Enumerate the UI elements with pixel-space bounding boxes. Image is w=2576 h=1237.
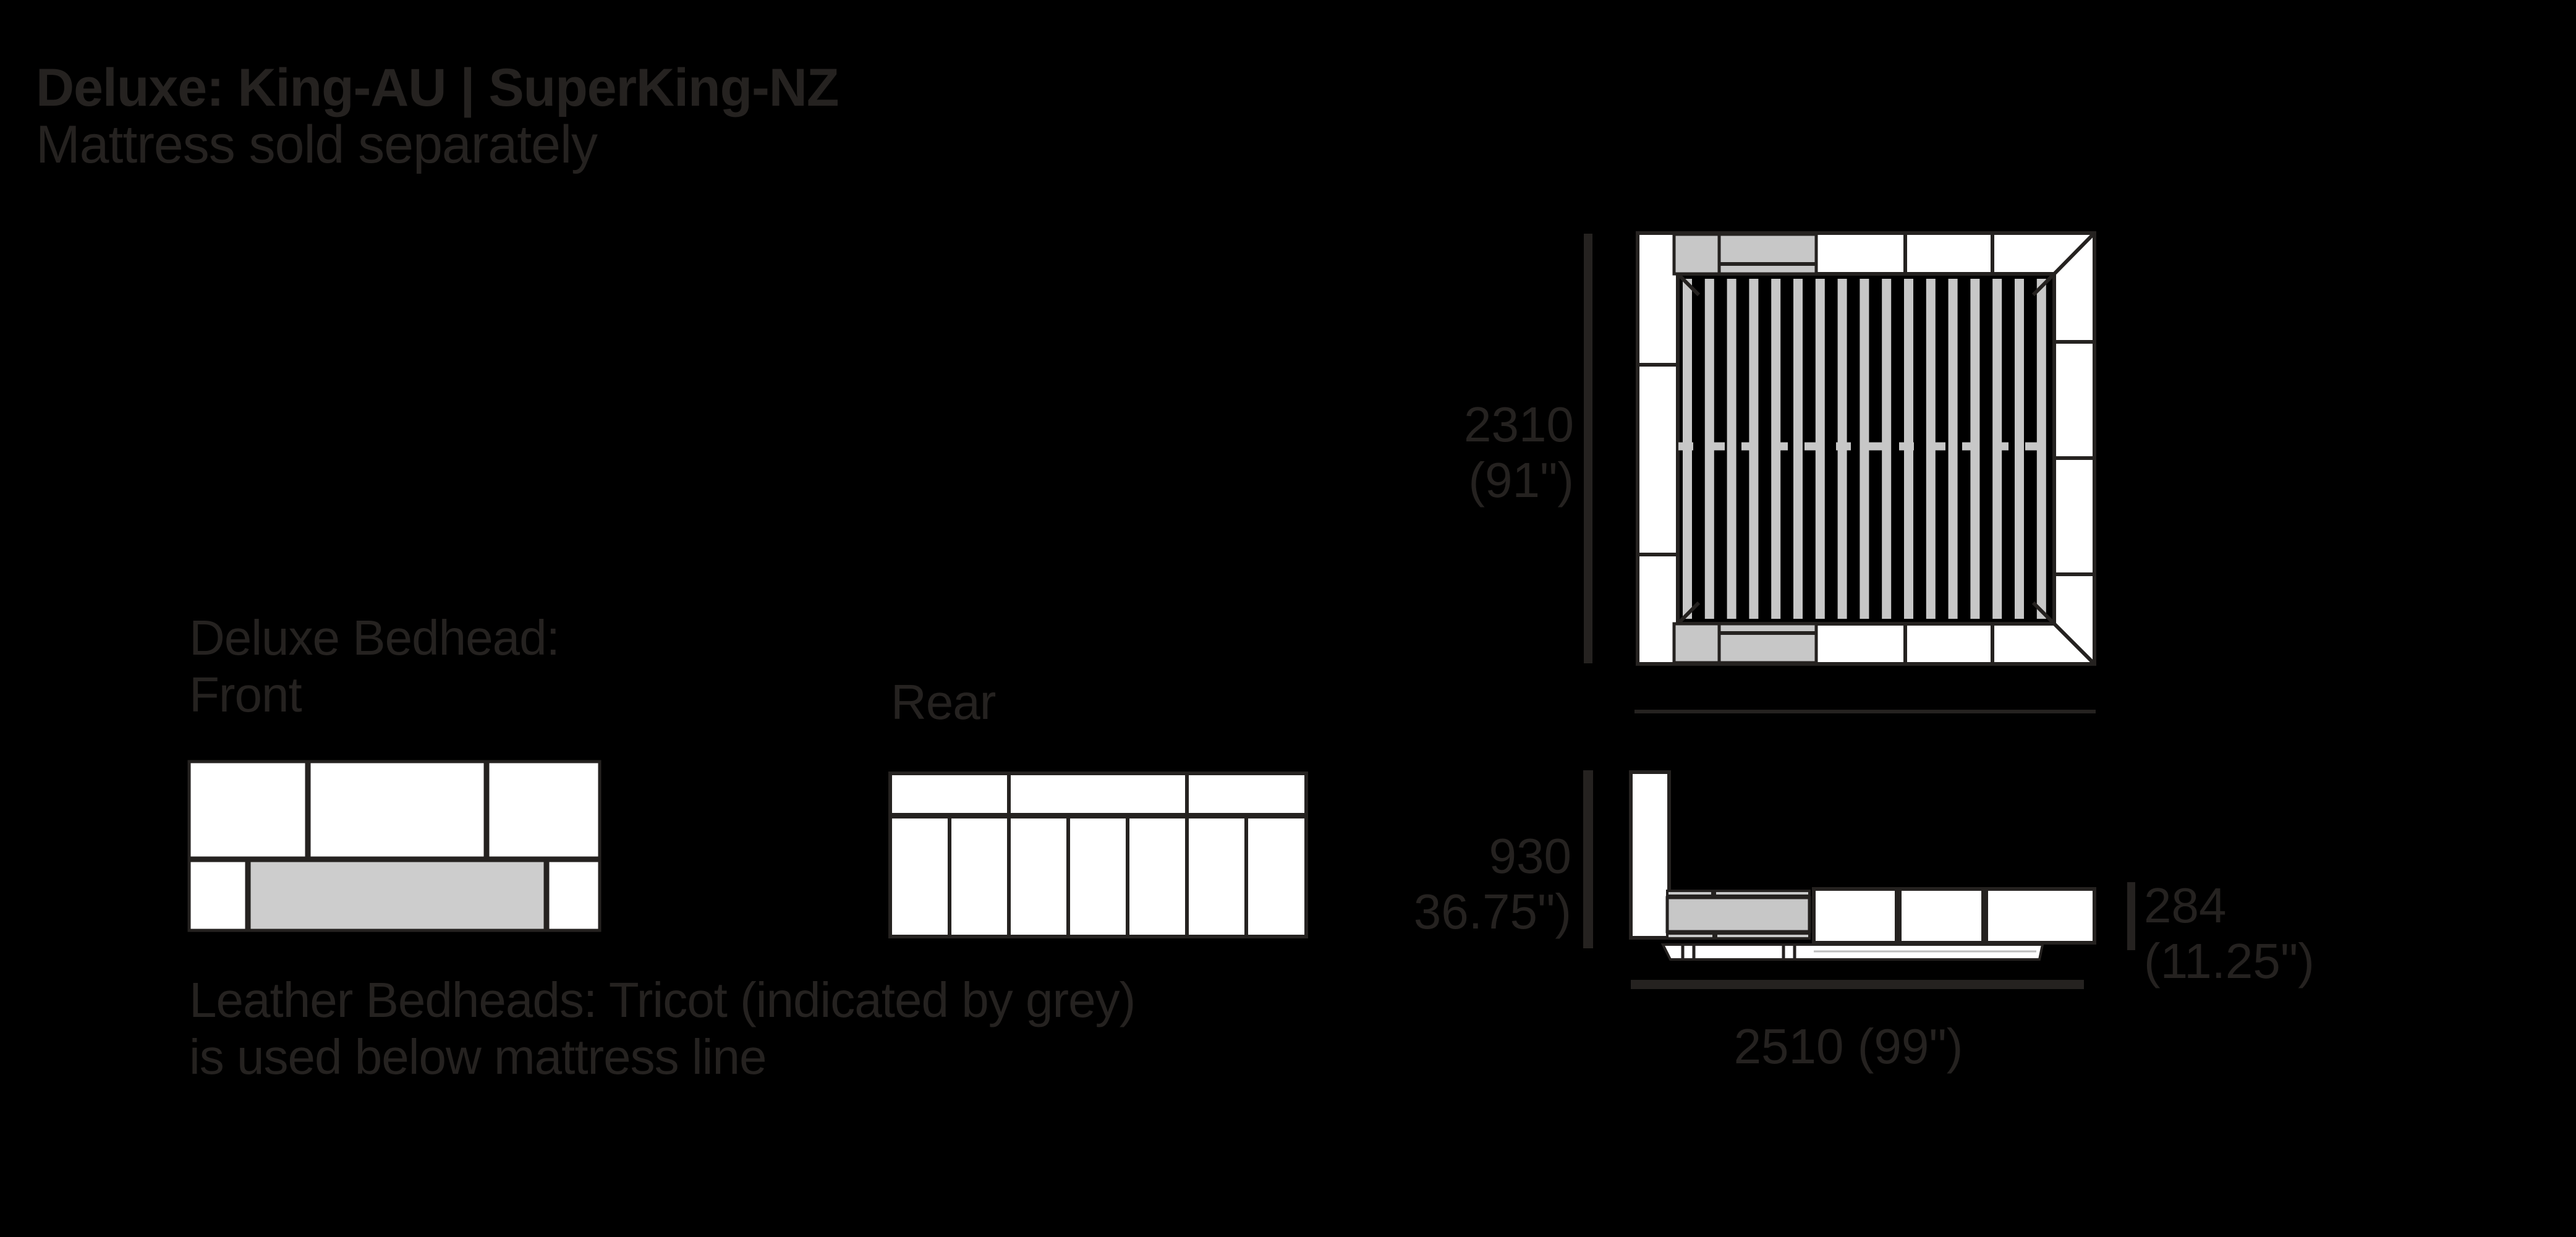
- tricot-panel-plan-bottom-small: [1674, 624, 1719, 663]
- bedhead-rear-drawing: [888, 772, 1309, 940]
- tricot-panel-plan-bottom-wide: [1719, 624, 1816, 663]
- bedhead-height-in: 36.75"): [1324, 884, 1571, 940]
- tricot-note-line2: is used below mattress line: [189, 1029, 1135, 1086]
- tricot-panel-plan-top-wide: [1719, 234, 1816, 274]
- bedhead-side-profile: [1631, 772, 1669, 938]
- bed-side-drawing: [1628, 767, 2098, 1001]
- bed-plan-drawing: [1635, 231, 2097, 666]
- front-bottom-row: [189, 861, 600, 930]
- page-title: Deluxe: King-AU | SuperKing-NZ: [36, 59, 838, 116]
- overall-length-dimension: 2510 (99"): [1725, 1019, 1972, 1074]
- bedhead-height-extent-bar: [1583, 770, 1593, 948]
- plan-width-dimension: 2310 (91"): [1327, 397, 1574, 508]
- platform-height-extent-bar: [2127, 882, 2135, 950]
- tricot-panel-plan-top-small: [1674, 234, 1719, 274]
- platform-height-dimension: 284 (11.25"): [2144, 878, 2404, 989]
- front-view-label: Deluxe Bedhead: Front: [189, 610, 559, 723]
- rear-battens: [890, 817, 1306, 937]
- rear-view-label: Rear: [891, 674, 995, 731]
- view-separator-line: [1634, 710, 2096, 713]
- front-top-row: [189, 762, 600, 858]
- bedhead-height-mm: 930: [1324, 828, 1571, 884]
- plinth: [1663, 945, 2043, 959]
- bedhead-front-drawing: [187, 759, 602, 933]
- plan-width-in: (91"): [1327, 453, 1574, 508]
- plan-width-extent-bar: [1584, 234, 1592, 663]
- tricot-note-line1: Leather Bedheads: Tricot (indicated by g…: [189, 972, 1135, 1029]
- spec-sheet-page: { "header": { "title": "Deluxe: King-AU …: [0, 0, 2576, 1237]
- header: Deluxe: King-AU | SuperKing-NZ Mattress …: [36, 59, 838, 173]
- page-subtitle: Mattress sold separately: [36, 116, 838, 173]
- bedhead-height-dimension: 930 36.75"): [1324, 828, 1571, 940]
- platform-height-in: (11.25"): [2144, 933, 2404, 989]
- side-rails: [1814, 889, 2094, 943]
- tricot-note: Leather Bedheads: Tricot (indicated by g…: [189, 972, 1135, 1086]
- tricot-panel-front: [249, 861, 545, 930]
- plan-width-mm: 2310: [1327, 397, 1574, 453]
- front-view-label-line2: Front: [189, 666, 559, 723]
- tricot-section-side: [1667, 891, 1809, 938]
- overall-length-bar: [1631, 980, 2084, 989]
- front-view-label-line1: Deluxe Bedhead:: [189, 610, 559, 666]
- platform-height-mm: 284: [2144, 878, 2404, 933]
- rear-top-rail: [890, 773, 1306, 815]
